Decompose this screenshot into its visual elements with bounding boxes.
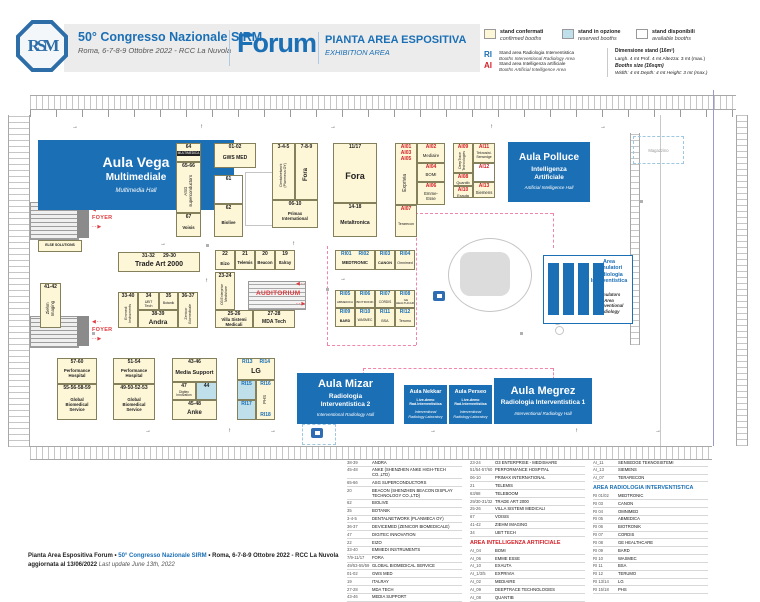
booth-code: AI06 [426,184,437,190]
directory-exhibitor-name: TELEMIS [495,484,513,489]
directory-column: 38-39ANDRA45-48ANKE (SHENZHEN ANKE HIGH-… [347,459,462,602]
directory-row: 38-39ANDRA [347,459,462,467]
ai-zone-boundary [553,213,554,248]
booth-name: Quantib [456,181,469,185]
directory-booth-code: 33-40 [347,547,372,552]
booth-21: 21Telemis [235,250,255,270]
escalator-block [77,316,89,346]
directory-row: AI_02MEDIAIRE [470,579,585,587]
booth-name: Teknosist. Sensedge [476,152,491,160]
booth-name: CANON [378,261,392,265]
directory-row: RI 08GE HEALTHCARE [593,539,708,547]
directory-booth-code: AI_1/3/5 [470,571,495,576]
booth-name: Botanik [163,302,174,306]
directory-booth-code: 23-24 [470,460,495,465]
directory-exhibitor-name: DEEPTRACE TECHNOLOGIES [495,588,555,593]
directory-exhibitor-name: EMME ESSE [495,557,520,562]
hall-vega: Aula VegaMultimedialeMultimedia Hall [38,140,234,210]
booth-code: RI18 [260,412,271,418]
directory-row: AI_13SIEMENS [593,467,708,475]
wall-bottom [30,446,712,460]
directory-exhibitor-name: SIEMENS [618,468,637,473]
booth-code: 34 [146,294,152,300]
booth-7-8-9: 7-8-9Fora [295,143,318,200]
footer-line2: aggiornata al 13/06/2022 Last update Jun… [28,561,338,570]
directory-booth-code: 41-42 [470,522,495,527]
directory-row: RI 13/14LG [593,579,708,587]
directory-row: RI 11BSA [593,563,708,571]
directory-exhibitor-name: GLOBAL BIOMEDICAL SERVICE [372,564,435,569]
booth-name: Dentalnetwork (Planmeca OY) [279,163,287,188]
booth-name: MDA Tech [262,320,286,326]
booth-name: Villa Sistemi Medicali [221,318,246,328]
directory-booth-code: 01-02 [347,571,372,576]
directory-exhibitor-name: LG [618,580,624,585]
flow-arrow [575,428,578,434]
directory-booth-code: AI_04 [470,548,495,553]
booth-name: Beacon [257,261,272,266]
foyer-arrow [92,224,102,230]
pillar [520,332,523,335]
directory-booth-code: RI 09 [593,548,618,553]
booth-code: 21 [242,252,248,258]
hall-subtitle-en: Multimedia Hall [115,188,156,195]
booth-name: Exprivia [403,174,409,192]
directory-booth-code: AI_09 [470,587,495,592]
booth-name: Exauta [457,194,469,198]
directory-exhibitor-name: BOTANIK [372,509,390,514]
directory-exhibitor-name: DEVICEMED (ZENICOR BIOMEDICALE) [372,525,449,530]
booth-code: RI17 [241,402,252,408]
hall-title: Aula Megrez [511,386,576,398]
booth-ri03: RI03CANON [375,250,395,270]
booth-code: RI09 [340,310,351,316]
booth-name: Media Support [175,370,213,376]
directory-row: 65-66ASG SUPERCONDUCTORS [347,479,462,487]
booth-code: RI03 [380,252,391,258]
booth-code: 14-18 [349,205,362,211]
booth-ri05: RI05ABMEDICA [335,290,355,308]
booth-code: AI13 [479,184,490,190]
booth-code: RI16 [260,382,271,388]
directory-exhibitor-name: FORA [372,556,384,561]
hall-subtitle: Multimediale [106,172,167,184]
booth-47: 47Digitec Innovation [172,382,196,400]
directory-heading: AREA INTELLIGENZA ARTIFICIALE [470,540,585,546]
booth-43-46: 43-46Media Support [172,358,217,382]
booth-code: 44 [204,384,210,390]
directory-exhibitor-name: VILLA SISTEMI MEDICALI [495,507,545,512]
booth-ri10: RI10WASMEC [355,308,375,327]
hall-perseo: Aula PerseoLive-demo Rad.Interventistica… [449,385,492,424]
directory-row: 41-42ZIEHM IMAGING [470,522,585,530]
booth-code: 41-42 [44,285,57,291]
wall-top-ticks [30,110,736,117]
directory-row: 51/54-57/60PERFORMANCE HOSPITAL [470,467,585,475]
booth-14-18: 14-18Metaltronica [333,203,377,237]
auditorium-arrow [296,281,306,287]
wall-left [8,115,30,447]
directory-row: 20BEACON (SHENZHEN BEACON DISPLAY TECHNO… [347,487,462,500]
booth-name: BSA [381,319,388,323]
booth-code: 31-32 29-30 [142,254,176,260]
directory-booth-code: 62 [347,500,372,505]
magazzino-area: Magazzino [633,136,684,164]
booth-code: 01-02 [229,145,242,151]
booth-code: RI12 [400,310,411,316]
hall-subtitle: Radiologia Interventistica 1 [501,399,586,407]
booth-name: O3 Enterprise Medishare [221,284,229,305]
booth-code: RI10 [360,310,371,316]
directory-row: AI_04BOMI [470,547,585,555]
directory-exhibitor-name: BOMI [495,549,506,554]
directory-exhibitor-name: TELEBOOM [495,492,518,497]
directory-exhibitor-name: TRADE ART 2000 [495,500,529,505]
directory-exhibitor-name: ITALRAY [372,580,389,585]
directory-row: RI 10WASMEC [593,555,708,563]
directory-booth-code: RI 15/18 [593,587,618,592]
directory-row: 33-40EMMEDI INSTRUMENTS [347,547,462,555]
hall-title: Aula Mizar [318,379,373,391]
booth-name: Ziehm Imaging [46,301,56,316]
booth-name: Global Biomedical Service [123,398,146,413]
directory-booth-code: 27-28 [347,587,372,592]
booth-55-56-58-59: 55-56-58-59Global Biomedical Service [57,384,97,420]
foyer-label: FOYER [92,215,112,221]
booth-code: 20 [262,252,268,258]
directory-exhibitor-name: MDA TECH [372,588,394,593]
directory-booth-code: 06-10 [470,475,495,480]
info-monitor-icon [433,291,445,301]
directory-column: AI_11SENSEDGE TEKNOSISTEMIAI_13SIEMENSAI… [593,459,708,602]
directory-booth-code: RI 07 [593,532,618,537]
directory-exhibitor-name: EIZO [372,541,382,546]
booth-name: Voisis [182,226,194,231]
directory-exhibitor-name: BEACON (SHENZHEN BEACON DISPLAY TECHNOLO… [372,489,462,499]
directory-exhibitor-name: MEDIA SUPPORT [372,595,406,600]
hall-subtitle-en: Interventional Radiology Laboratory [453,410,487,419]
booth-name: Trade Art 2000 [135,261,183,269]
booth-ri04: RI04Omnimed [395,250,415,270]
central-core [460,252,510,296]
directory-row: 01-02GWS MED [347,570,462,578]
booth-code: 22 [222,252,228,258]
hall-title: Aula Vega [103,155,170,170]
booth-49-50-52-53: 49-50-52-53Global Biomedical Service [113,384,155,420]
foyer-label: FOYER [92,327,112,333]
directory-booth-code: 51/54-57/60 [470,467,495,472]
hall-subtitle: Radiologia Interventistica 2 [321,393,371,409]
directory-exhibitor-name: BARD [618,549,630,554]
booth-code: RI11 [380,310,390,316]
directory-row: RI 03CANON [593,500,708,508]
booth-ri12: RI12Terumo [395,308,415,327]
booth-name: MULTIMEDICA [177,151,200,156]
directory-row: AI_11SENSEDGE TEKNOSISTEMI [593,459,708,467]
booth-code: 06-10 [289,202,302,208]
booth-67: 67Voisis [176,213,201,237]
flow-arrow [205,278,208,284]
directory-exhibitor-name: MEDIAIRE [495,580,515,585]
booth-name: DeepTrace Technologies [459,151,467,171]
directory-exhibitor-name: PERFORMANCE HOSPITAL [495,468,549,473]
hall-subtitle: Live-demo Rad.Interventistica [409,398,441,407]
directory-row: 29/30-31/32TRADE ART 2000 [470,498,585,506]
booth-name: Omnimed [397,261,413,265]
hall-subtitle-en: Interventional Radiology Hall [317,412,374,417]
directory-booth-code: AI_11 [593,460,618,465]
booth-ri01-ri02: RI01 RI02MEDTRONIC [335,250,375,270]
directory-row: 27-28MDA TECH [347,586,462,594]
booth-code: 19 [282,252,288,258]
pillar [640,200,643,203]
booth-name: Anke [187,410,202,417]
booth-code: RI15 [241,382,252,388]
wall-top [30,95,736,110]
booth-code: AI07 [401,207,412,213]
booth-ri06: RI06BIOTRONIK [355,290,375,308]
booth-name: Terarecon [398,222,414,226]
directory-exhibitor-name: PHS [618,588,627,593]
directory-row: 67VOISIS [470,514,585,522]
booth-22: 22Eizo [215,250,235,270]
flow-arrow [655,428,661,434]
hall-subtitle-en: Interventional Radiology Laboratory [408,410,442,419]
hall-title: Aula Perseo [455,390,487,396]
wall-right [736,115,748,446]
directory-booth-code: RI 01/02 [593,493,618,498]
hall-title: Aula Polluce [519,153,579,164]
directory-booth-code: 7/9-11/17 [347,555,372,560]
booth-code: 33-40 [122,294,135,300]
booth-code: 35 [166,294,172,300]
booth-name: Global Biomedical Service [66,398,89,413]
booth-ri07: RI07CORDIS [375,290,395,308]
booth-27-28: 27-28MDA Tech [253,310,295,328]
hall-mizar: Aula MizarRadiologia Interventistica 2In… [297,373,394,424]
directory-exhibitor-name: DIGITEC INNOVATION [372,533,416,538]
directory-row: 34UBT TECH [470,529,585,537]
booth-code: AI01 AI03 AI05 [401,145,412,162]
booth-name: Performance Hospital [121,369,147,379]
booth-name: Emme- Esse [424,192,438,202]
directory-row: 7/9-11/17FORA [347,555,462,563]
booth-ri17: RI17 [237,400,256,420]
directory-row: 49/53-55/59GLOBAL BIOMEDICAL SERVICE [347,563,462,571]
directory-row: 3-4-5DENTALNETWORK (PLANMECA OY) [347,516,462,524]
directory-exhibitor-name: BIOLIVE [372,501,388,506]
booth-44: 44 [196,382,217,400]
directory-booth-code: AI_06 [470,556,495,561]
directory-booth-code: 65-66 [347,480,372,485]
booth-11-17: 11/17Fora [333,143,377,203]
info-monitor-icon [311,428,323,438]
booth-code: AI11 [479,145,489,151]
wall-line [713,90,714,446]
directory-booth-code: RI 06 [593,524,618,529]
booth-ri15: RI15 [237,380,256,400]
directory-exhibitor-name: ABMEDICA [618,517,640,522]
directory-row: AI_07TERARECON [593,475,708,483]
booth-51-54: 51-54Performance Hospital [113,358,155,384]
booth-code: AI04 [426,165,437,171]
auditorium-arrow [296,301,306,307]
directory-exhibitor-name: QUANTIB [495,596,514,601]
booth-code: 3-4-5 [278,145,290,151]
directory-row: 06-10PRIMAX INTERNATIONAL [470,475,585,483]
booth-ai08: AI08Quantib [453,173,473,186]
simulator-bar [563,263,574,315]
booth-name: Andra [149,319,168,326]
directory-exhibitor-name: O3 ENTERPRISE - MEDISHARE [495,461,557,466]
flow-arrow [72,124,78,130]
booth-code: RI05 [340,292,351,298]
ri-zone-boundary [327,345,416,346]
booth-ai07: AI07Terarecon [395,205,417,237]
booth-name: Metaltronica [340,221,369,227]
directory-exhibitor-name: CANON [618,502,633,507]
booth-35: 35Botanik [159,292,178,310]
flow-arrow [490,124,493,130]
directory-booth-code: 49/53-55/59 [347,563,372,568]
booth-name: ABMEDICA [337,301,353,305]
directory-exhibitor-name: BIOTRONIK [618,525,641,530]
simulator-bar [548,263,559,315]
booth-name: WASMEC [358,319,373,323]
booth-code: 11/17 [349,145,361,151]
booth-code: RI04 [400,252,411,258]
directory-booth-code: 35 [347,508,372,513]
directory-booth-code: AI_13 [593,467,618,472]
directory-row: 23-24O3 ENTERPRISE - MEDISHARE [470,459,585,467]
booth-code: 65-66 [182,164,195,170]
booth-ri13-ri14: RI13 RI14LG [237,358,275,380]
directory-row: RI 09BARD [593,547,708,555]
directory-booth-code: RI 08 [593,540,618,545]
booth-06-10: 06-10Primax International [272,200,318,228]
directory-exhibitor-name: DENTALNETWORK (PLANMECA OY) [372,517,444,522]
directory-exhibitor-name: EXAUTA [495,564,511,569]
hall-subtitle: Live-demo Rad.Interventistica [454,398,486,407]
directory-row: RI 05ABMEDICA [593,516,708,524]
booth-ai02: AI02Mediaire [417,143,445,163]
booth-name: Zenicor Biomedicale [184,304,192,324]
directory-booth-code: 36-37 [347,524,372,529]
booth-name: Fora [303,168,310,181]
directory-booth-code: 19 [347,579,372,584]
directory-exhibitor-name: ZIEHM IMAGING [495,523,527,528]
directory-booth-code: 3-4-5 [347,516,372,521]
booth-code: 27-28 [268,312,281,318]
directory-booth-code: RI 04 [593,509,618,514]
directory-booth-code: AI_08 [470,595,495,600]
booth-ai04: AI04BOMI [417,163,445,182]
directory-exhibitor-name: PRIMAX INTERNATIONAL [495,476,545,481]
hall-subtitle: Intelligenza Artificiale [531,166,566,182]
directory-booth-code: 38-39 [347,460,372,465]
directory-exhibitor-name: BSA [618,564,626,569]
directory-booth-code: 29/30-31/32 [470,499,495,504]
flow-arrow [292,241,295,247]
directory-booth-code: RI 13/14 [593,579,618,584]
directory-booth-code: AI_10 [470,563,495,568]
flow-arrow [340,276,346,282]
booth-code: AI12 [479,165,490,171]
flow-arrow [270,428,276,434]
directory-booth-code: 47 [347,532,372,537]
booth-code: AI02 [426,145,437,151]
booth-ai13: AI13Siemens [473,182,495,198]
pillar [326,288,329,291]
directory-booth-code: RI 05 [593,516,618,521]
booth-25-26: 25-26Villa Sistemi Medicali [215,310,253,328]
directory-row: 35BOTANIK [347,508,462,516]
auditorium-label: AUDITORIUM [256,290,300,297]
booth-name: CORDIS [379,301,391,305]
booth-code: 7-8-9 [301,145,313,151]
directory-booth-code: RI 12 [593,571,618,576]
booth-23-24: 23-24O3 Enterprise Medishare [215,272,235,310]
directory-booth-code: 22 [347,540,372,545]
booth-code: 49-50-52-53 [120,386,147,392]
booth-code: 38-39 [152,312,165,318]
directory-exhibitor-name: EXPRIVIA [495,572,514,577]
directory-exhibitor-name: WASMEC [618,557,637,562]
booth-name: Digitec Innovation [176,391,191,399]
hall-nekkar: Aula NekkarLive-demo Rad.Interventistica… [404,385,447,424]
ai-zone-boundary [395,213,553,214]
booth-name: ASG superconductors [184,175,194,207]
directory-exhibitor-name: TERUMO [618,572,636,577]
gridline [660,115,661,446]
booth-code: 45-48 [188,402,201,408]
flow-arrow [430,428,436,434]
directory-column: 23-24O3 ENTERPRISE - MEDISHARE51/54-57/6… [470,459,585,602]
directory-row: RI 04OMNIMED [593,508,708,516]
directory-row: 63/68TELEBOOM [470,490,585,498]
directory-row: AI_1/3/5EXPRIVIA [470,571,585,579]
booth-code: RI07 [380,292,391,298]
directory-exhibitor-name: GE HEALTHCARE [618,541,653,546]
hall-polluce: Aula PolluceIntelligenza ArtificialeArti… [508,142,590,202]
booth-ri16: RI16PHSRI18 [256,380,275,420]
booth-33-40: 33-40Emmedi Instruments [118,292,138,328]
pillar [92,332,95,335]
directory-row: AI_08QUANTIB [470,594,585,602]
booth-ai06: AI06Emme- Esse [417,182,445,205]
booth-name: MEDTRONIC [342,261,368,266]
directory-booth-code: 45-48 [347,467,372,472]
directory-booth-code: RI 03 [593,501,618,506]
booth-code: 62 [226,206,232,212]
booth-code: 57-60 [71,360,84,366]
booth-ai09: AI09DeepTrace Technologies [453,143,473,173]
directory-exhibitor-name: ANKE (SHENZHEN ANKE HIGH-TECH CO.,LTD) [372,468,462,478]
directory-row: RI 06BIOTRONIK [593,524,708,532]
booth-name: Italray [279,261,291,266]
directory-row: 62BIOLIVE [347,500,462,508]
directory-exhibitor-name: UBT TECH [495,531,516,536]
directory-heading: AREA RADIOLOGIA INTERVENTISTICA [593,485,708,491]
ramp-dot [555,326,564,335]
directory-exhibitor-name: ANDRA [372,461,387,466]
hall-title: Aula Nekkar [410,390,442,396]
directory-exhibitor-name: VOISIS [495,515,509,520]
booth-code: RI08 [400,292,411,298]
flow-arrow [330,124,336,130]
booth-34: 34UBT Tech [138,292,159,310]
booth-code: 36-37 [182,294,195,300]
